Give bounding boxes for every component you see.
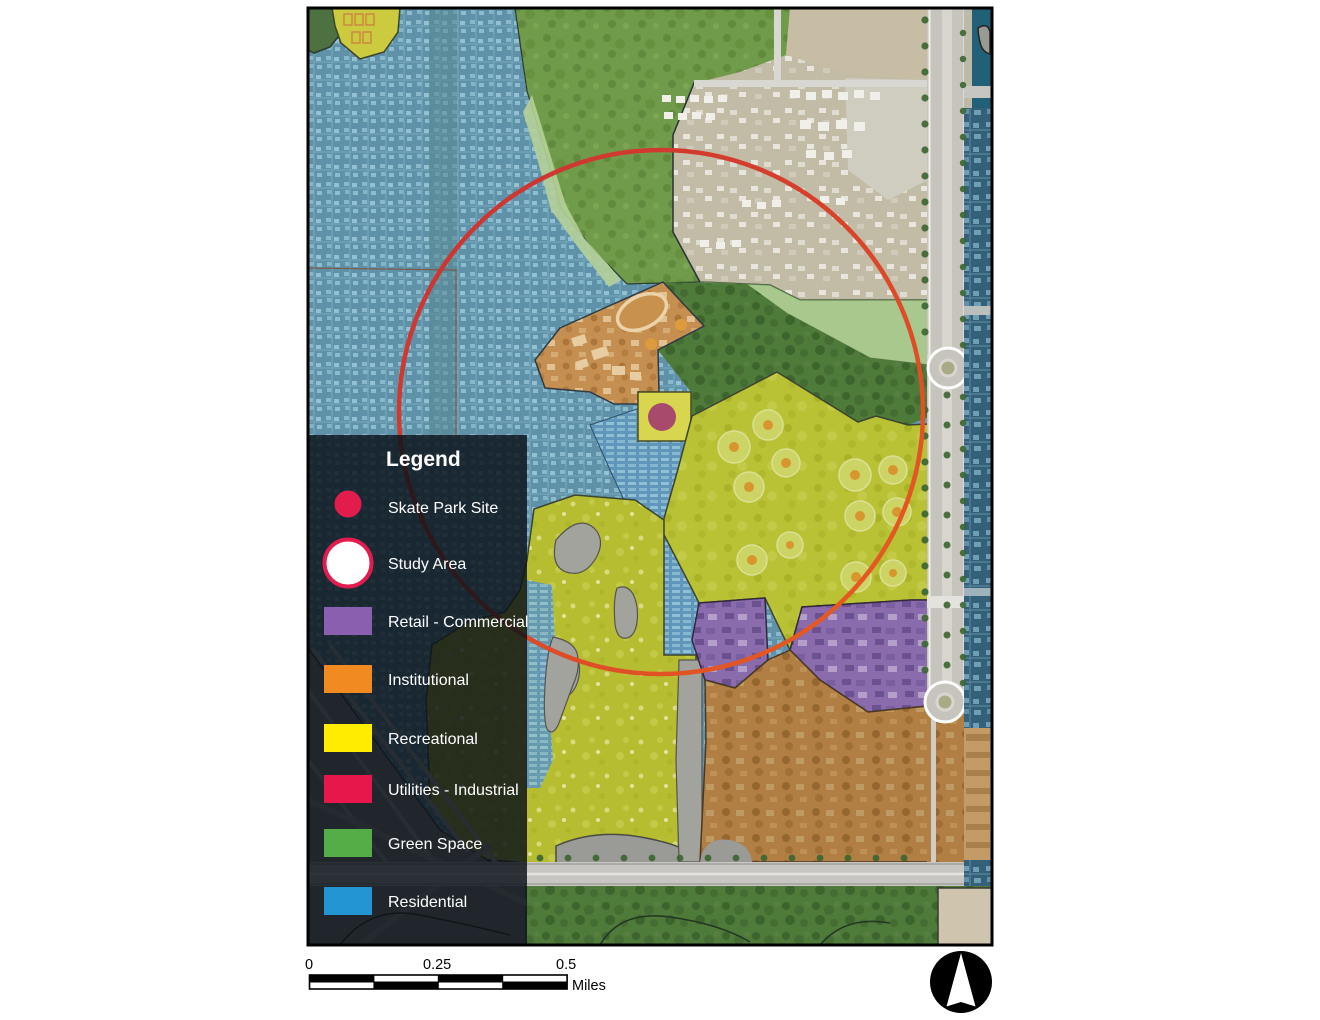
svg-text:Residential: Residential — [388, 894, 467, 911]
svg-text:Study Area: Study Area — [388, 556, 466, 573]
svg-text:Retail - Commercial: Retail - Commercial — [388, 614, 528, 631]
svg-text:Legend: Legend — [386, 448, 461, 471]
svg-text:Institutional: Institutional — [388, 672, 469, 689]
svg-text:Skate Park Site: Skate Park Site — [388, 500, 498, 517]
svg-text:0.5: 0.5 — [556, 957, 576, 973]
svg-text:Recreational: Recreational — [388, 731, 478, 748]
svg-text:Miles: Miles — [572, 978, 606, 994]
svg-text:0.25: 0.25 — [423, 957, 451, 973]
svg-text:0: 0 — [305, 957, 313, 973]
svg-text:Utilities - Industrial: Utilities - Industrial — [388, 782, 519, 799]
svg-text:Green Space: Green Space — [388, 836, 482, 853]
